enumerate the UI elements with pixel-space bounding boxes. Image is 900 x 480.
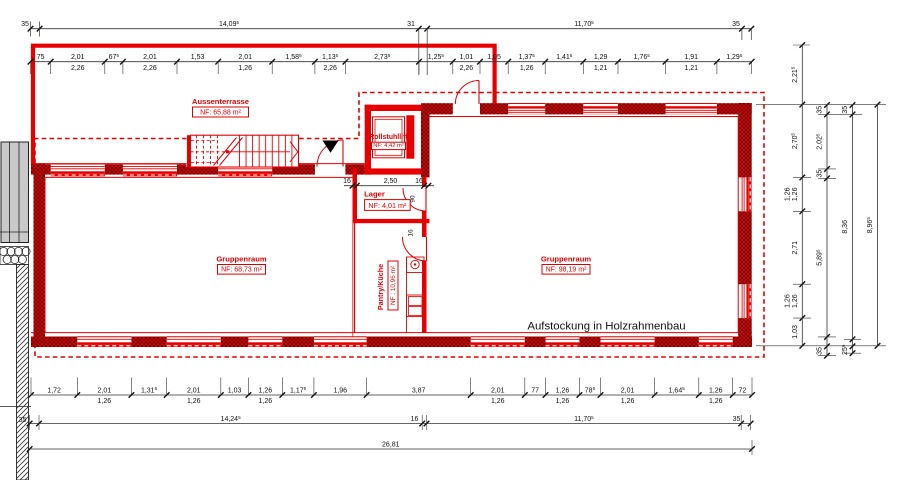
svg-text:35: 35 bbox=[817, 170, 824, 178]
svg-text:1,26: 1,26 bbox=[98, 398, 112, 405]
svg-text:26,81: 26,81 bbox=[382, 442, 400, 449]
svg-text:1,21: 1,21 bbox=[594, 65, 608, 72]
svg-text:77: 77 bbox=[531, 387, 539, 394]
svg-text:1,26: 1,26 bbox=[792, 294, 799, 308]
svg-text:2,01: 2,01 bbox=[71, 54, 85, 61]
svg-text:16: 16 bbox=[343, 178, 351, 185]
svg-text:1,26: 1,26 bbox=[187, 398, 201, 405]
svg-text:1,21: 1,21 bbox=[684, 65, 698, 72]
svg-text:1,26: 1,26 bbox=[259, 398, 273, 405]
svg-text:1,01: 1,01 bbox=[460, 54, 474, 61]
svg-text:1,29: 1,29 bbox=[594, 54, 608, 61]
svg-text:90: 90 bbox=[410, 195, 417, 203]
svg-text:11,705: 11,705 bbox=[574, 415, 594, 423]
svg-text:1,26: 1,26 bbox=[785, 187, 792, 201]
svg-text:Rollstuhllift: Rollstuhllift bbox=[369, 134, 408, 141]
svg-text:2,01: 2,01 bbox=[238, 54, 252, 61]
svg-text:35: 35 bbox=[21, 21, 29, 28]
svg-text:1,03: 1,03 bbox=[792, 325, 799, 339]
svg-text:31: 31 bbox=[407, 21, 415, 28]
svg-text:NF: 98,19 m²: NF: 98,19 m² bbox=[546, 267, 588, 274]
svg-text:1,26: 1,26 bbox=[792, 187, 799, 201]
svg-text:35: 35 bbox=[817, 347, 824, 355]
svg-text:1,26: 1,26 bbox=[621, 398, 635, 405]
svg-text:NF : 10,96 m²: NF : 10,96 m² bbox=[390, 266, 397, 305]
svg-text:Lager: Lager bbox=[364, 190, 385, 199]
svg-text:Gruppenraum: Gruppenraum bbox=[216, 255, 266, 264]
svg-text:2,01: 2,01 bbox=[621, 387, 635, 394]
svg-text:1,26: 1,26 bbox=[238, 65, 252, 72]
svg-text:16: 16 bbox=[415, 178, 423, 185]
svg-text:NF: 4,01 m²: NF: 4,01 m² bbox=[368, 201, 407, 210]
svg-text:1,53: 1,53 bbox=[191, 54, 205, 61]
svg-text:Aussenterrasse: Aussenterrasse bbox=[192, 97, 249, 106]
svg-text:1,26: 1,26 bbox=[520, 65, 534, 72]
svg-text:16: 16 bbox=[408, 229, 415, 237]
svg-text:1,91: 1,91 bbox=[684, 54, 698, 61]
svg-text:2,71: 2,71 bbox=[792, 241, 799, 255]
svg-text:1,26: 1,26 bbox=[491, 398, 505, 405]
svg-text:75: 75 bbox=[37, 54, 45, 61]
svg-text:2,26: 2,26 bbox=[143, 65, 157, 72]
svg-text:8,36: 8,36 bbox=[842, 220, 849, 234]
svg-text:3,87: 3,87 bbox=[412, 387, 426, 394]
svg-text:1,03: 1,03 bbox=[228, 387, 242, 394]
svg-text:NF: 65,88 m²: NF: 65,88 m² bbox=[200, 110, 242, 117]
svg-text:Pantry/Küche: Pantry/Küche bbox=[376, 264, 385, 310]
svg-text:1,26: 1,26 bbox=[709, 398, 723, 405]
svg-text:Aufstockung in Holzrahmenbau: Aufstockung in Holzrahmenbau bbox=[527, 321, 685, 333]
svg-text:72: 72 bbox=[738, 387, 746, 394]
svg-text:35: 35 bbox=[733, 416, 741, 423]
svg-text:1,26: 1,26 bbox=[785, 294, 792, 308]
svg-text:35: 35 bbox=[817, 106, 824, 114]
svg-text:2,26: 2,26 bbox=[71, 65, 85, 72]
svg-text:35: 35 bbox=[842, 106, 849, 114]
svg-text:2,01: 2,01 bbox=[491, 387, 505, 394]
svg-text:2,50: 2,50 bbox=[384, 178, 398, 185]
svg-text:NF: 68,73 m²: NF: 68,73 m² bbox=[221, 267, 263, 274]
svg-text:14,095: 14,095 bbox=[219, 20, 240, 28]
svg-text:35: 35 bbox=[732, 21, 740, 28]
svg-text:Gruppenraum: Gruppenraum bbox=[541, 255, 591, 264]
svg-text:2,01: 2,01 bbox=[143, 54, 157, 61]
svg-text:35: 35 bbox=[19, 417, 27, 424]
svg-text:1,26: 1,26 bbox=[556, 387, 570, 394]
svg-text:1,26: 1,26 bbox=[556, 398, 570, 405]
svg-text:14,245: 14,245 bbox=[221, 415, 242, 423]
svg-text:2,26: 2,26 bbox=[323, 65, 337, 72]
svg-text:1,72: 1,72 bbox=[47, 387, 61, 394]
svg-text:1,26: 1,26 bbox=[709, 387, 723, 394]
svg-text:1,96: 1,96 bbox=[333, 387, 347, 394]
svg-text:NF: 4,42 m²: NF: 4,42 m² bbox=[373, 143, 404, 149]
svg-text:2,01: 2,01 bbox=[98, 387, 112, 394]
svg-text:16: 16 bbox=[411, 416, 419, 423]
svg-text:1,26: 1,26 bbox=[259, 387, 273, 394]
svg-text:1,05: 1,05 bbox=[487, 54, 501, 61]
svg-text:2,26: 2,26 bbox=[460, 65, 474, 72]
svg-text:2,01: 2,01 bbox=[187, 387, 201, 394]
